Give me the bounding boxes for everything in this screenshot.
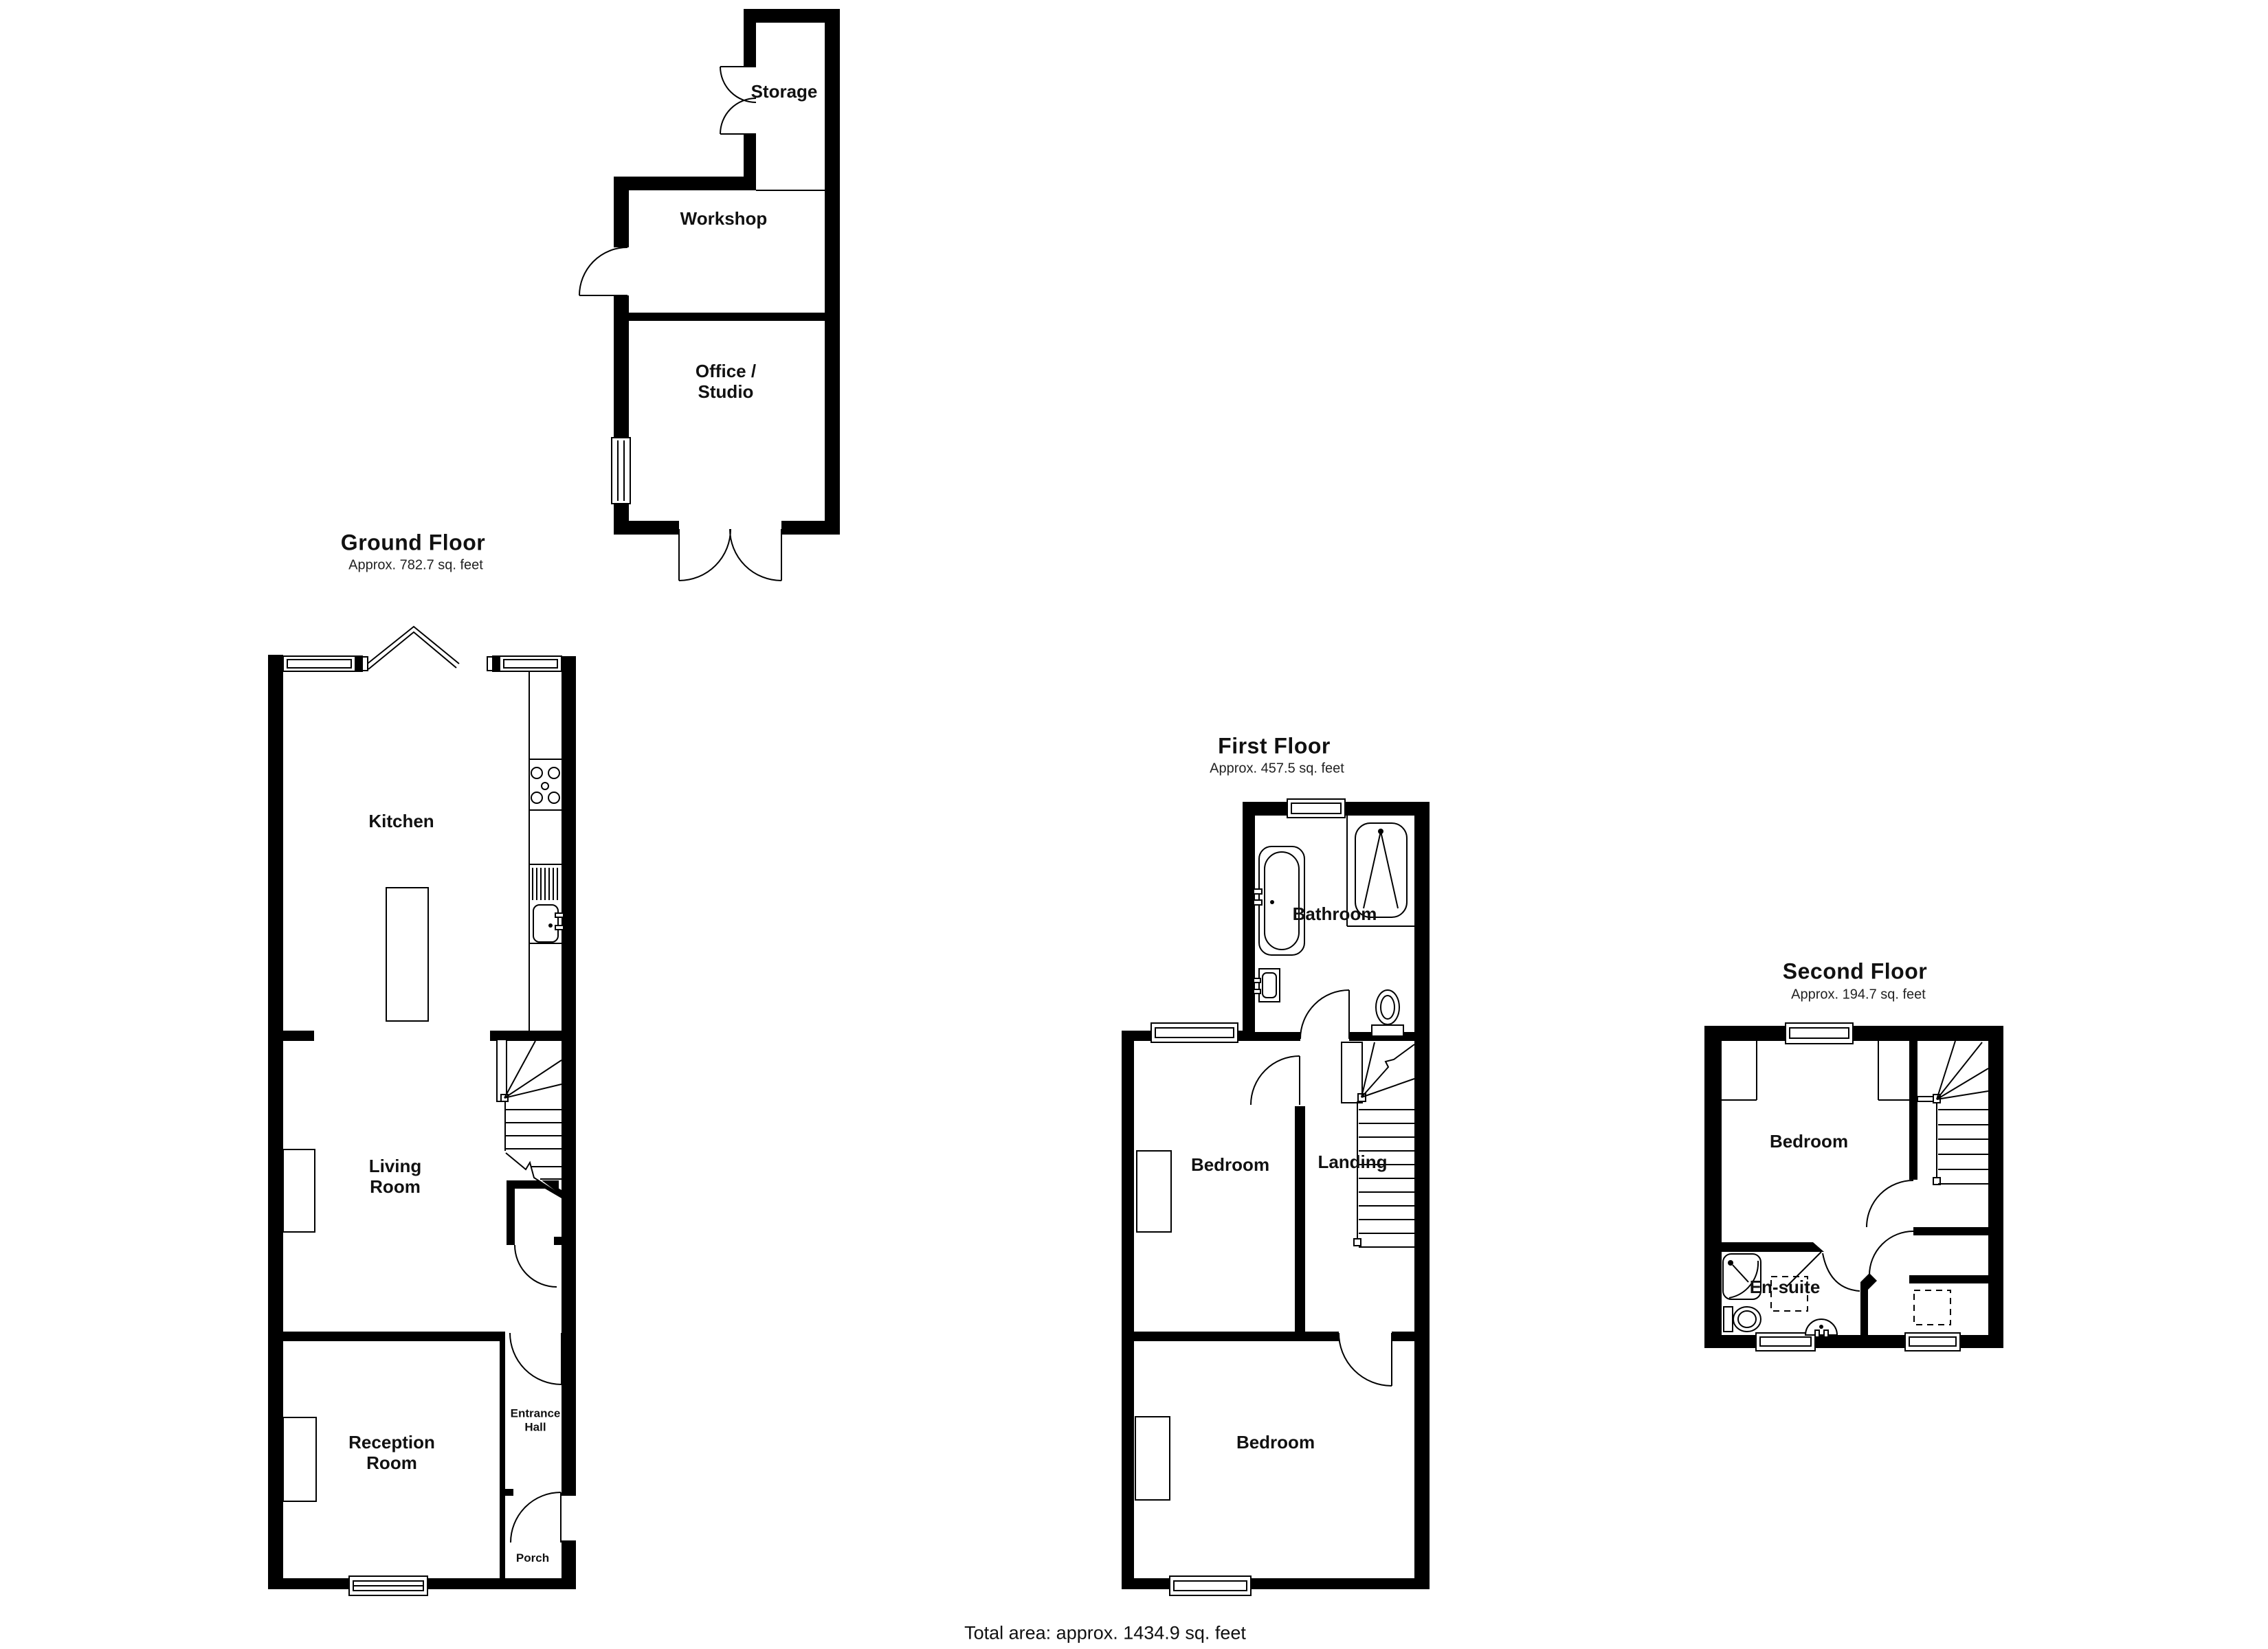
bath-icon (1254, 846, 1304, 955)
room-label-second-bedroom: Bedroom (1770, 1132, 1848, 1152)
room-label-landing: Landing (1318, 1152, 1387, 1173)
room-label-bathroom: Bathroom (1293, 904, 1377, 925)
kitchen-counter (529, 671, 562, 1031)
eaves-storage-dashed (1914, 1290, 1950, 1325)
bed-front (1137, 1151, 1171, 1232)
room-label-office-studio: Office / Studio (696, 361, 756, 403)
first-floor-title: First Floor (1218, 734, 1331, 759)
total-area-text: Total area: approx. 1434.9 sq. feet (964, 1622, 1246, 1644)
living-room-chimney-breast (283, 1149, 315, 1232)
room-label-reception-room: Reception Room (348, 1433, 435, 1474)
first-floor-area: Approx. 457.5 sq. feet (1210, 761, 1344, 777)
dormer-lines (1722, 1041, 1909, 1100)
bedroom-back-window (1170, 1576, 1251, 1595)
room-label-bedroom-front: Bedroom (1191, 1155, 1269, 1176)
second-floor (1704, 1023, 2003, 1351)
room-label-workshop: Workshop (680, 209, 768, 229)
floorplan-page: Ground Floor Approx. 782.7 sq. feet Stor… (0, 0, 2268, 1649)
toilet-icon (1372, 990, 1403, 1036)
ground-stairs (497, 1040, 562, 1196)
bathroom-window (1287, 799, 1345, 818)
drainer-icon (533, 868, 557, 900)
second-window-bottom-right (1905, 1333, 1960, 1351)
ground-floor-area: Approx. 782.7 sq. feet (348, 558, 483, 574)
room-label-ensuite: En-suite (1750, 1277, 1821, 1298)
bedroom-front-door (1251, 1056, 1300, 1105)
reception-chimney-breast (283, 1417, 316, 1501)
cupboard-door-arc (515, 1245, 557, 1287)
ensuite-toilet-icon (1724, 1307, 1761, 1332)
front-door (511, 1492, 561, 1543)
hob-icon (531, 767, 559, 803)
first-stairs (1342, 1042, 1414, 1247)
storage-door-arc (720, 98, 756, 134)
office-french-doors (679, 529, 781, 581)
kitchen-window-left (283, 656, 368, 671)
bathroom-door (1300, 990, 1349, 1039)
floorplan-drawing (0, 0, 2268, 1649)
eaves-door-arc (1869, 1231, 1913, 1275)
bed-back (1135, 1417, 1170, 1500)
reception-window (349, 1576, 427, 1595)
workshop-door-arc (579, 247, 627, 295)
room-label-bedroom-back: Bedroom (1236, 1433, 1315, 1453)
kitchen-island (386, 888, 428, 1021)
second-bedroom-door-arc (1867, 1180, 1913, 1227)
room-label-living-room: Living Room (369, 1156, 422, 1198)
office-window (612, 438, 630, 504)
room-label-porch: Porch (516, 1551, 549, 1565)
ground-floor-title: Ground Floor (341, 530, 485, 556)
hall-door (510, 1333, 562, 1384)
room-label-entrance-hall: Entrance Hall (511, 1406, 561, 1433)
second-floor-title: Second Floor (1783, 959, 1927, 985)
bedroom-front-window (1151, 1023, 1238, 1042)
kitchen-sink-icon (533, 905, 564, 942)
second-floor-area: Approx. 194.7 sq. feet (1791, 987, 1926, 1003)
kitchen-bay-chevron (366, 627, 459, 669)
kitchen-window-right (487, 656, 562, 671)
second-stairs (1917, 1041, 1988, 1185)
ensuite-sink-icon (1805, 1319, 1837, 1337)
first-floor (1122, 799, 1430, 1595)
second-window-top (1786, 1023, 1853, 1044)
room-label-kitchen: Kitchen (368, 811, 434, 832)
bedroom-back-door (1339, 1333, 1392, 1386)
bathroom-sink-icon (1254, 969, 1280, 1002)
room-label-storage: Storage (751, 82, 818, 102)
